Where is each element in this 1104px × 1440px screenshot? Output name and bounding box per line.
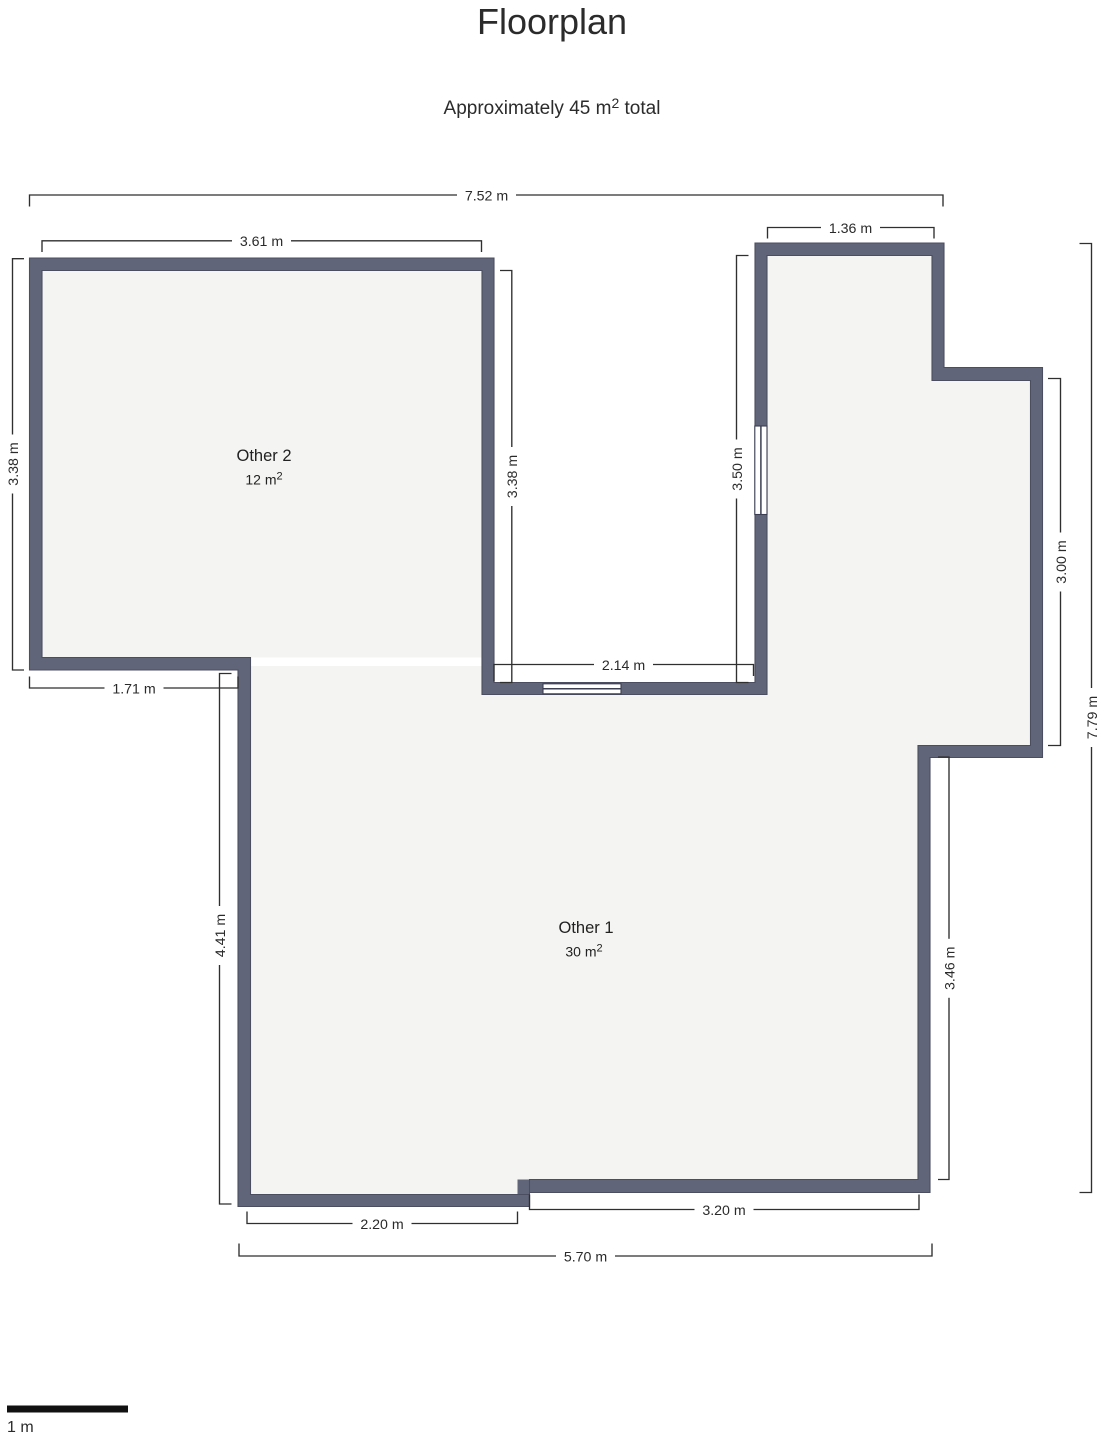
svg-text:4.41 m: 4.41 m bbox=[213, 914, 229, 957]
svg-text:2.20 m: 2.20 m bbox=[360, 1217, 403, 1233]
svg-text:3.50 m: 3.50 m bbox=[730, 447, 746, 490]
svg-text:3.61 m: 3.61 m bbox=[240, 234, 283, 250]
svg-text:3.38 m: 3.38 m bbox=[505, 455, 521, 498]
svg-text:1.71 m: 1.71 m bbox=[112, 681, 155, 697]
svg-text:7.52 m: 7.52 m bbox=[465, 188, 508, 204]
svg-text:3.46 m: 3.46 m bbox=[942, 947, 958, 990]
svg-text:Floorplan: Floorplan bbox=[477, 1, 627, 42]
svg-text:1 m: 1 m bbox=[7, 1419, 34, 1436]
svg-text:1.36 m: 1.36 m bbox=[829, 221, 872, 237]
svg-text:7.79 m: 7.79 m bbox=[1085, 696, 1101, 739]
svg-text:3.00 m: 3.00 m bbox=[1054, 540, 1070, 583]
svg-text:3.20 m: 3.20 m bbox=[702, 1203, 745, 1219]
svg-text:2.14 m: 2.14 m bbox=[602, 658, 645, 674]
svg-text:5.70 m: 5.70 m bbox=[564, 1249, 607, 1265]
svg-text:Approximately 45 m2 total: Approximately 45 m2 total bbox=[444, 95, 661, 119]
svg-text:Other 2: Other 2 bbox=[236, 447, 291, 465]
svg-text:3.38 m: 3.38 m bbox=[6, 442, 22, 485]
svg-text:Other 1: Other 1 bbox=[558, 919, 613, 937]
